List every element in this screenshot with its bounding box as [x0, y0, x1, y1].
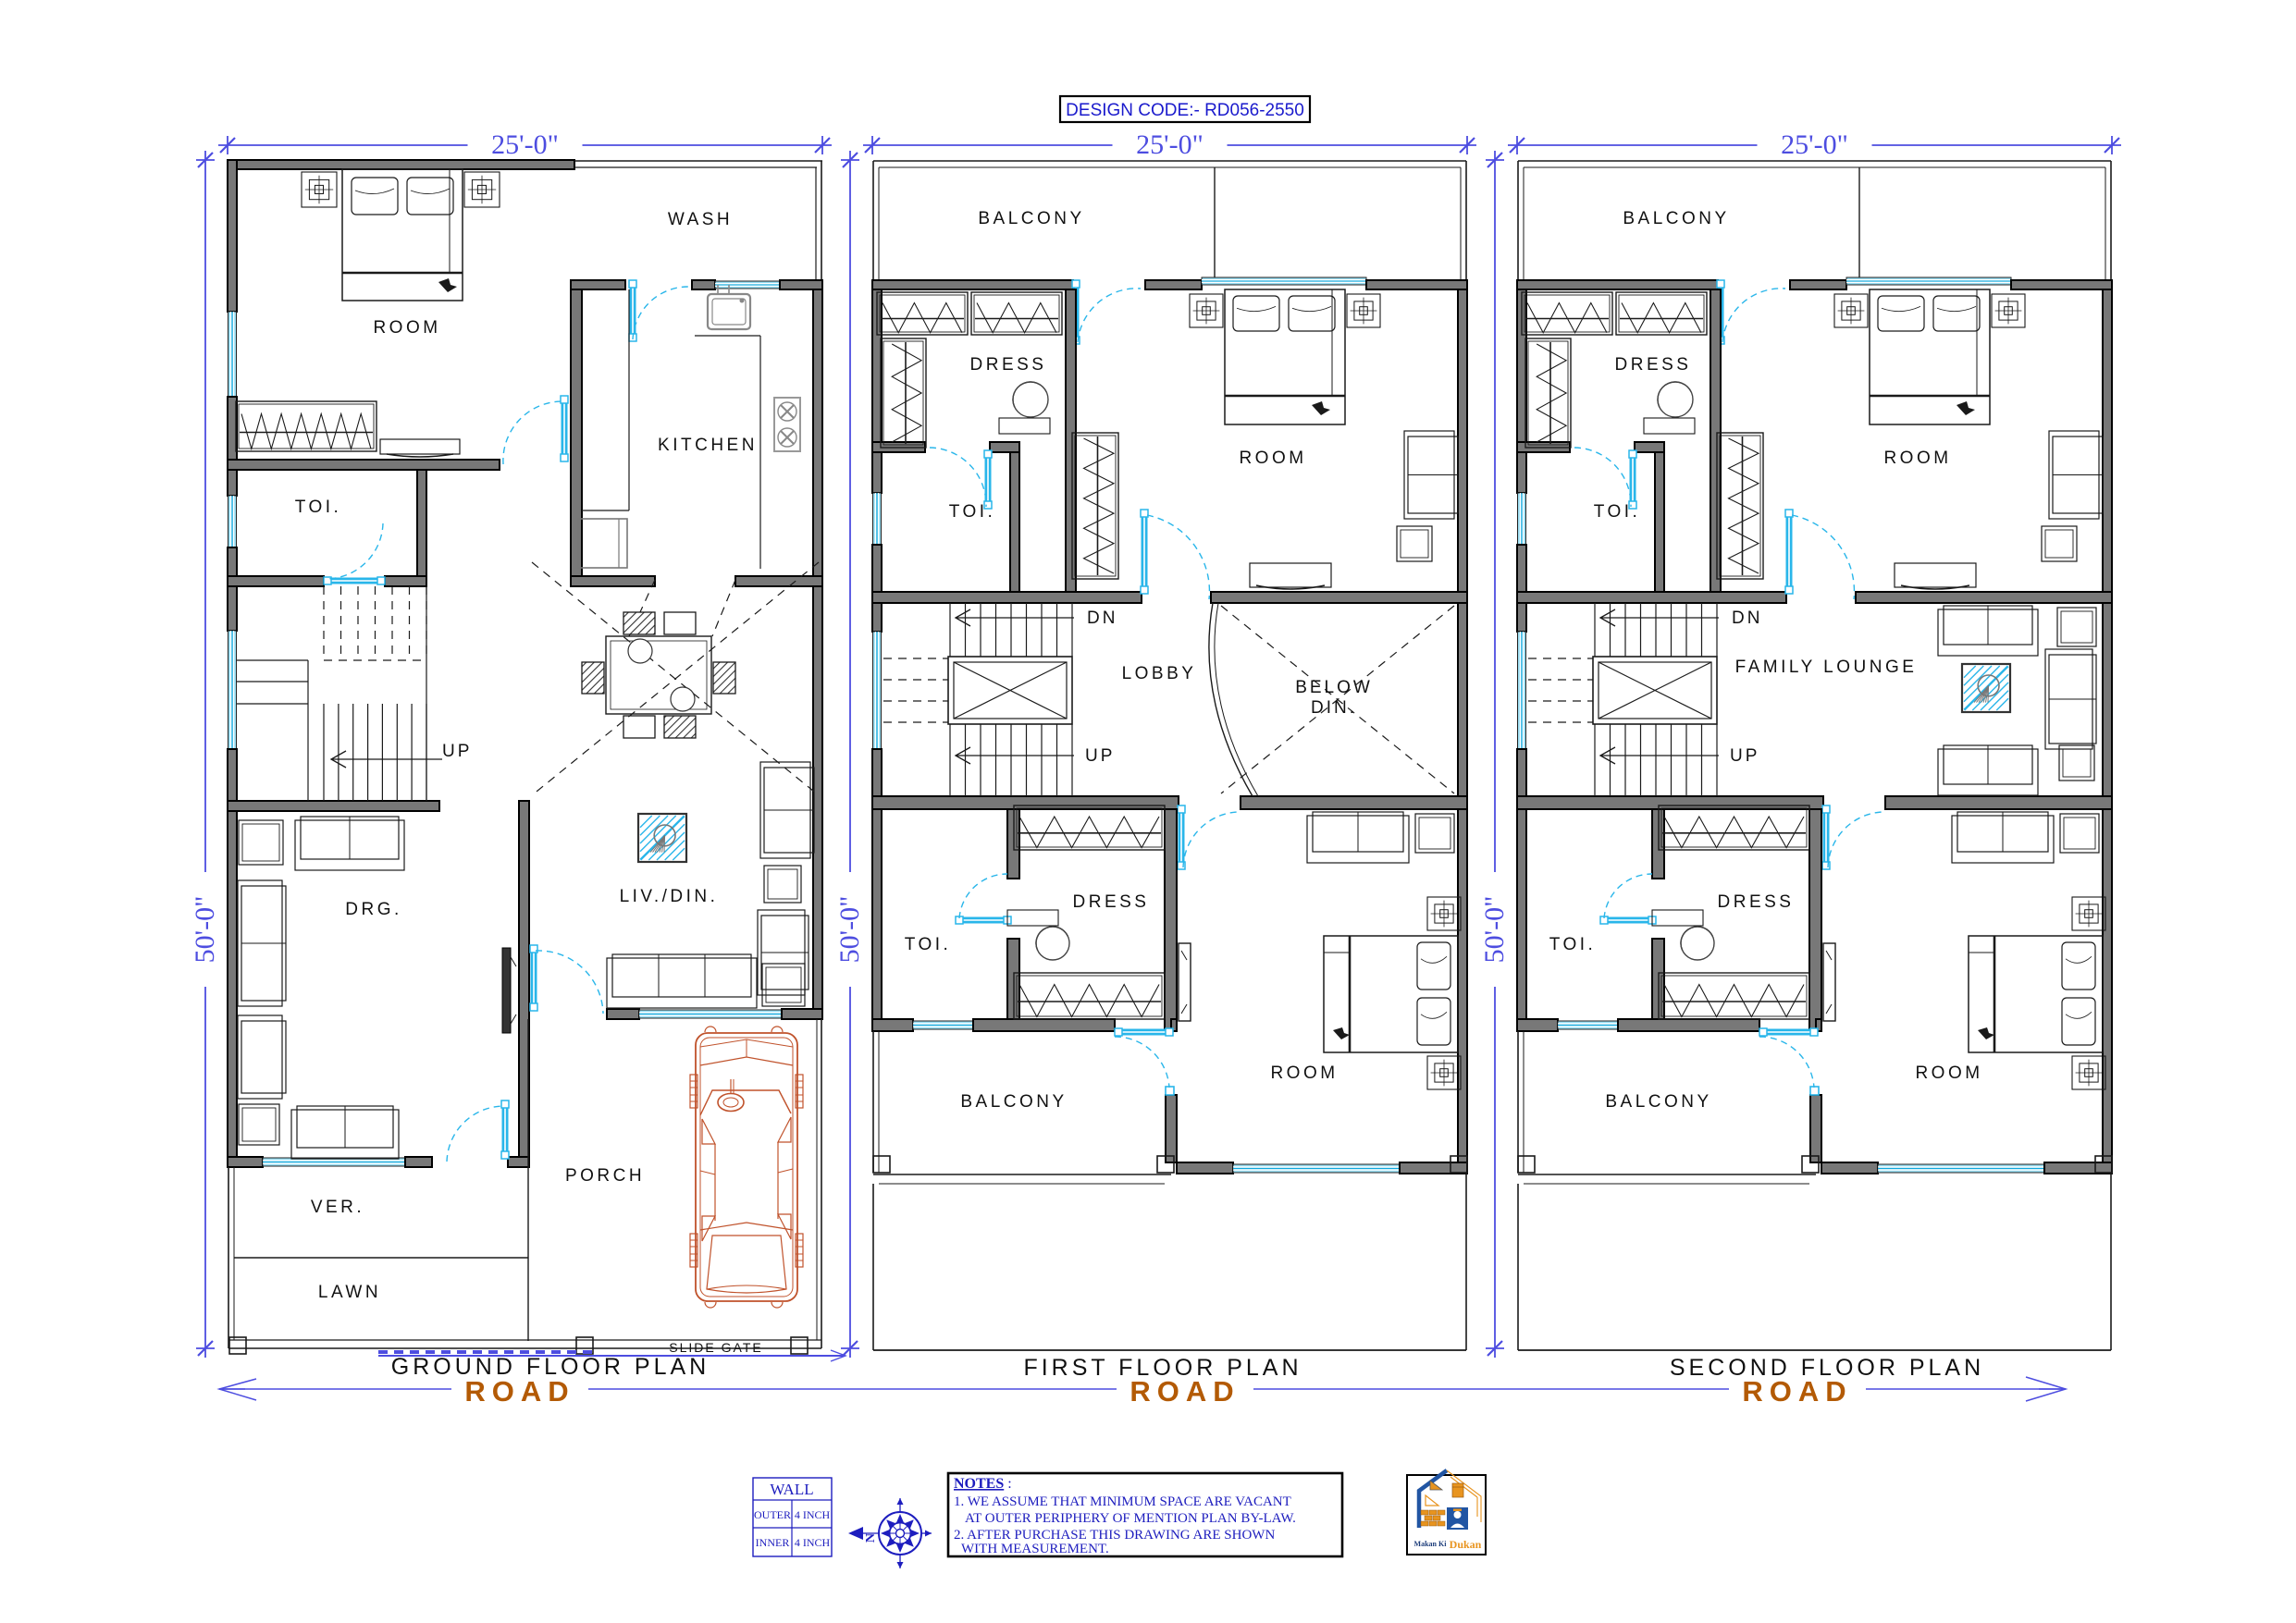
svg-text:50'-0": 50'-0" [834, 896, 865, 964]
svg-text:VER.: VER. [311, 1198, 364, 1217]
svg-text:ROAD: ROAD [464, 1375, 574, 1408]
svg-text:1. WE ASSUME THAT MINIMUM SPAC: 1. WE ASSUME THAT MINIMUM SPACE ARE VACA… [954, 1494, 1291, 1509]
svg-text:TOI.: TOI. [905, 935, 952, 954]
svg-text:DRESS: DRESS [1073, 892, 1150, 912]
svg-text:ROOM: ROOM [1239, 449, 1306, 468]
svg-text:ROOM: ROOM [1915, 1064, 1982, 1083]
svg-text:DRESS: DRESS [1615, 355, 1692, 375]
svg-text:LIV./DIN.: LIV./DIN. [620, 887, 719, 906]
svg-text:4 INCH: 4 INCH [795, 1508, 831, 1521]
svg-text:TOI.: TOI. [1594, 502, 1641, 522]
svg-text:50'-0": 50'-0" [190, 896, 220, 964]
svg-text:PORCH: PORCH [565, 1166, 645, 1186]
svg-text:25'-0": 25'-0" [1136, 129, 1204, 160]
svg-text:TOI.: TOI. [1549, 935, 1597, 954]
svg-text:ROAD: ROAD [1742, 1375, 1852, 1408]
svg-text:BELOW: BELOW [1295, 678, 1373, 697]
svg-text:BALCONY: BALCONY [960, 1092, 1067, 1112]
svg-text:25'-0": 25'-0" [491, 129, 559, 160]
svg-text:KITCHEN: KITCHEN [658, 436, 758, 455]
svg-text:ROOM: ROOM [1883, 449, 1951, 468]
svg-text:DN: DN [1732, 609, 1762, 628]
svg-text:WITH MEASUREMENT.: WITH MEASUREMENT. [961, 1542, 1109, 1556]
svg-text:Dukan: Dukan [1450, 1538, 1482, 1551]
svg-text:LOBBY: LOBBY [1122, 664, 1197, 683]
svg-text:LAWN: LAWN [318, 1283, 381, 1302]
svg-text:WASH: WASH [668, 210, 733, 229]
svg-text:AT OUTER PERIPHERY OF MENTION: AT OUTER PERIPHERY OF MENTION PLAN BY-LA… [965, 1511, 1296, 1526]
svg-text:DRESS: DRESS [970, 355, 1047, 375]
svg-text:ROOM: ROOM [373, 318, 440, 338]
svg-text:DRG.: DRG. [345, 900, 402, 919]
svg-text:DRESS: DRESS [1718, 892, 1795, 912]
svg-text:UP: UP [442, 742, 472, 761]
svg-text:SLIDE GATE: SLIDE GATE [669, 1340, 762, 1355]
svg-text:FAMILY LOUNGE: FAMILY LOUNGE [1735, 658, 1918, 677]
svg-text:UP: UP [1730, 746, 1759, 766]
svg-text:N: N [864, 1533, 878, 1543]
svg-text:DN: DN [1087, 609, 1117, 628]
svg-text:TOI.: TOI. [949, 502, 996, 522]
svg-text:DIN.: DIN. [1311, 698, 1357, 718]
svg-text:OUTER: OUTER [754, 1508, 791, 1521]
svg-text:BALCONY: BALCONY [978, 209, 1084, 228]
svg-text:ROAD: ROAD [1129, 1375, 1240, 1408]
svg-text:NOTES :: NOTES : [954, 1476, 1012, 1492]
svg-text:BALCONY: BALCONY [1605, 1092, 1711, 1112]
svg-text:INNER: INNER [756, 1536, 790, 1549]
svg-text:UP: UP [1085, 746, 1115, 766]
svg-text:Makan Ki: Makan Ki [1414, 1540, 1448, 1548]
svg-text:BALCONY: BALCONY [1623, 209, 1729, 228]
svg-text:TOI.: TOI. [295, 498, 342, 517]
svg-text:ROOM: ROOM [1270, 1064, 1338, 1083]
svg-text:DESIGN CODE:- RD056-2550: DESIGN CODE:- RD056-2550 [1066, 101, 1304, 120]
svg-text:WALL: WALL [770, 1481, 813, 1498]
svg-text:2. AFTER PURCHASE THIS DRAWING: 2. AFTER PURCHASE THIS DRAWING ARE SHOWN [954, 1528, 1275, 1543]
svg-text:50'-0": 50'-0" [1479, 896, 1510, 964]
svg-text:25'-0": 25'-0" [1781, 129, 1848, 160]
svg-text:4 INCH: 4 INCH [795, 1536, 831, 1549]
